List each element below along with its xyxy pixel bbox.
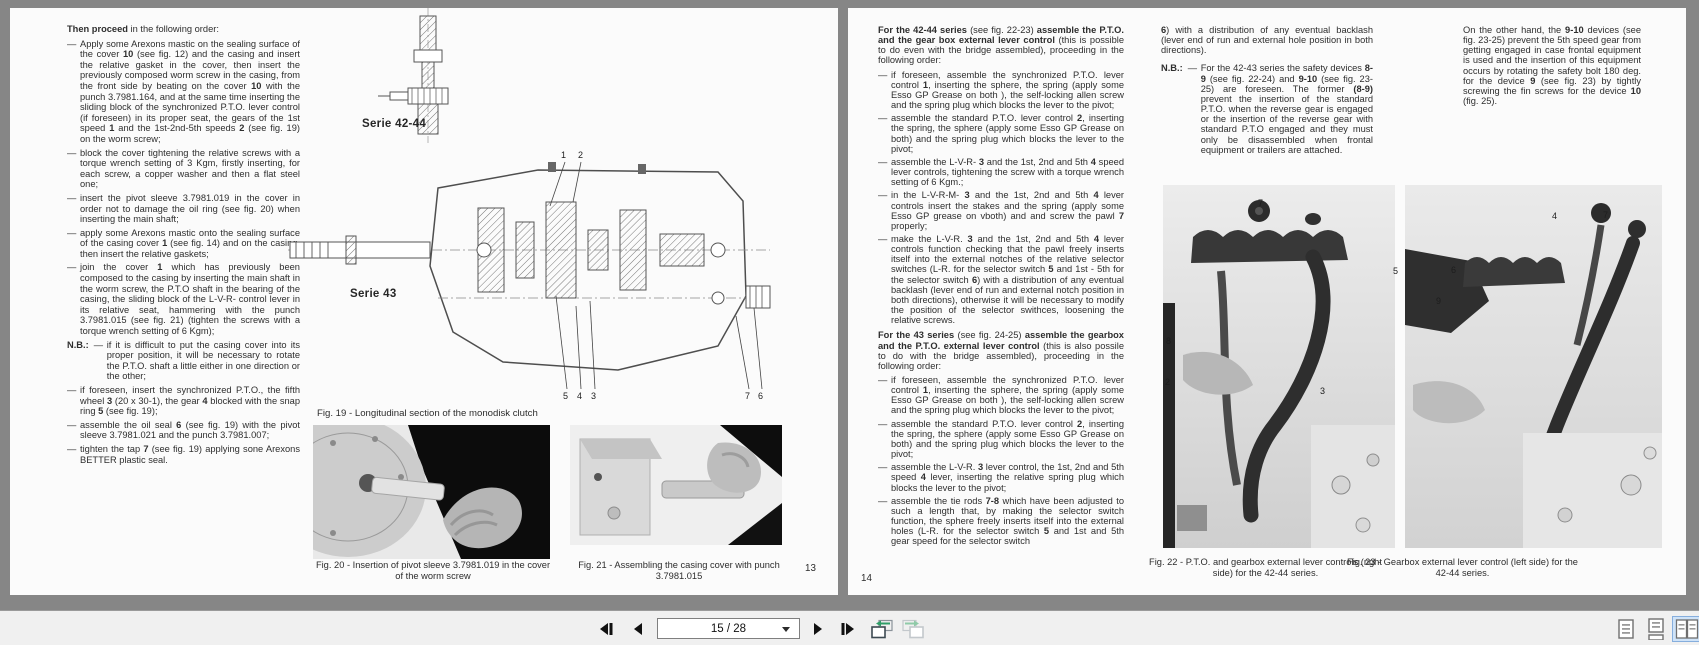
- list-item-text: For the 42-43 series the safety devices …: [1201, 63, 1373, 154]
- list-dash: —: [67, 228, 80, 260]
- list-item-text: if foreseen, insert the synchronized P.T…: [80, 385, 300, 417]
- list-item-text: in the L-V-R-M- 3 and the 1st, 2nd and 5…: [891, 190, 1124, 231]
- fig22-callout: 2: [1165, 377, 1170, 387]
- fig22-photo: [1163, 185, 1395, 548]
- list-dash: —: [94, 340, 107, 382]
- list-item: —assemble the L-V-R. 3 lever control, th…: [878, 462, 1124, 492]
- list-dash: —: [878, 375, 891, 416]
- fig23-callout: 6: [1451, 265, 1456, 275]
- list-item: —assemble the L-V-R- 3 and the 1st, 2nd …: [878, 157, 1124, 187]
- serie-42-44-label: Serie 42-44: [362, 118, 426, 130]
- list-dash: —: [878, 496, 891, 547]
- fig22-callout: 3: [1320, 386, 1325, 396]
- list-dash: —: [67, 262, 80, 336]
- next-view-button[interactable]: [899, 617, 927, 640]
- list-item-text: apply some Arexons mastic onto the seali…: [80, 228, 300, 260]
- list-item: —assemble the oil seal 6 (see fig. 19) w…: [67, 420, 300, 441]
- previous-page-icon: [630, 621, 646, 637]
- list-item-text: if foreseen, assemble the synchronized P…: [891, 375, 1124, 416]
- previous-view-icon: [870, 619, 894, 639]
- fig22-callout: 7: [1258, 198, 1263, 208]
- list-item: N.B.:—For the 42-43 series the safety de…: [1161, 63, 1373, 154]
- page-number-combobox[interactable]: 15 / 28: [657, 618, 800, 639]
- page-number-14: 14: [861, 573, 872, 584]
- nb-label: N.B.:: [1161, 63, 1183, 154]
- list-item: —if foreseen, assemble the synchronized …: [878, 375, 1124, 416]
- fig19-callout: 2: [578, 150, 583, 160]
- list-item: —if foreseen, assemble the synchronized …: [878, 70, 1124, 111]
- paragraph: Then proceed in the following order:: [67, 24, 300, 35]
- list-item: —apply some Arexons mastic onto the seal…: [67, 228, 300, 260]
- list-dash: —: [67, 385, 80, 417]
- list-dash: —: [67, 148, 80, 190]
- list-dash: —: [878, 70, 891, 111]
- fig21-caption: Fig. 21 - Assembling the casing cover wi…: [570, 560, 788, 582]
- fig23-callout: 9: [1436, 296, 1441, 306]
- continuous-view-icon: [1646, 618, 1666, 640]
- fig20-photo: [313, 425, 550, 559]
- fig20-caption: Fig. 20 - Insertion of pivot sleeve 3.79…: [313, 560, 553, 582]
- next-view-icon: [901, 619, 925, 639]
- fig19-callout: 4: [577, 391, 582, 401]
- right-text-column-3: On the other hand, the 9-10 devices (see…: [1463, 25, 1641, 106]
- fig19-caption: Fig. 19 - Longitudinal section of the mo…: [317, 408, 538, 419]
- nb-label: N.B.:: [67, 340, 89, 382]
- paragraph: For the 42-44 series (see fig. 22-23) as…: [878, 25, 1124, 66]
- single-page-view-button[interactable]: [1612, 616, 1639, 642]
- fig23-callout: 4: [1552, 211, 1557, 221]
- list-dash: —: [67, 193, 80, 225]
- nb-block: N.B.:—For the 42-43 series the safety de…: [1161, 63, 1373, 154]
- list-item: —make the L-V-R. 3 and the 1st, 2nd and …: [878, 234, 1124, 325]
- list-item: —tighten the tap 7 (see fig. 19) applyin…: [67, 444, 300, 465]
- list-item-text: Apply some Arexons mastic on the sealing…: [80, 39, 300, 145]
- first-page-button[interactable]: [594, 617, 618, 640]
- list-item-text: join the cover 1 which has previously be…: [80, 262, 300, 336]
- list-item: —block the cover tightening the relative…: [67, 148, 300, 190]
- next-page-button[interactable]: [806, 617, 830, 640]
- list-item: —assemble the standard P.T.O. lever cont…: [878, 419, 1124, 460]
- fig19-callout: 1: [561, 150, 566, 160]
- page-indicator-value: 15 / 28: [711, 623, 746, 635]
- paragraph: For the 43 series (see fig. 24-25) assem…: [878, 330, 1124, 371]
- manual-page-14: For the 42-44 series (see fig. 22-23) as…: [848, 8, 1686, 595]
- paragraph: 6) with a distribution of any eventual b…: [1161, 25, 1373, 55]
- fig23-photo: [1405, 185, 1662, 548]
- bullet-list: —Apply some Arexons mastic on the sealin…: [67, 39, 300, 466]
- serie-43-label: Serie 43: [350, 288, 397, 300]
- bullet-list: —if foreseen, assemble the synchronized …: [878, 70, 1124, 326]
- list-item-text: assemble the oil seal 6 (see fig. 19) wi…: [80, 420, 300, 441]
- previous-page-button[interactable]: [626, 617, 650, 640]
- continuous-view-button[interactable]: [1642, 616, 1669, 642]
- fig23-caption: Fig. 23 - Gearbox external lever control…: [1340, 557, 1585, 579]
- left-text-column: Then proceed in the following order: —Ap…: [67, 24, 300, 468]
- list-item-text: assemble the standard P.T.O. lever contr…: [891, 113, 1124, 154]
- list-dash: —: [878, 462, 891, 492]
- list-item: —if foreseen, insert the synchronized P.…: [67, 385, 300, 417]
- last-page-button[interactable]: [836, 617, 860, 640]
- list-dash: —: [67, 420, 80, 441]
- paragraph: On the other hand, the 9-10 devices (see…: [1463, 25, 1641, 106]
- viewer-toolbar: 15 / 28: [0, 610, 1699, 645]
- bullet-list: —if foreseen, assemble the synchronized …: [878, 375, 1124, 547]
- list-dash: —: [67, 444, 80, 465]
- next-page-icon: [810, 621, 826, 637]
- list-item-text: make the L-V-R. 3 and the 1st, 2nd and 5…: [891, 234, 1124, 325]
- list-dash: —: [1188, 63, 1201, 154]
- page-number-13: 13: [805, 563, 816, 574]
- right-text-column-1: For the 42-44 series (see fig. 22-23) as…: [878, 25, 1124, 550]
- facing-pages-view-button[interactable]: [1672, 616, 1699, 642]
- list-item-text: insert the pivot sleeve 3.7981.019 in th…: [80, 193, 300, 225]
- previous-view-button[interactable]: [868, 617, 896, 640]
- list-dash: —: [878, 234, 891, 325]
- list-item-text: if foreseen, assemble the synchronized P…: [891, 70, 1124, 111]
- list-item-text: assemble the tie rods 7-8 which have bee…: [891, 496, 1124, 547]
- fig22-callout: 8: [1166, 336, 1171, 346]
- right-text-column-2: 6) with a distribution of any eventual b…: [1161, 25, 1373, 158]
- list-item: —assemble the tie rods 7-8 which have be…: [878, 496, 1124, 547]
- fig19-callout: 3: [591, 391, 596, 401]
- list-item-text: block the cover tightening the relative …: [80, 148, 300, 190]
- list-item-text: assemble the L-V-R- 3 and the 1st, 2nd a…: [891, 157, 1124, 187]
- list-item: N.B.:—if it is difficult to put the casi…: [67, 340, 300, 382]
- list-dash: —: [878, 190, 891, 231]
- list-dash: —: [878, 419, 891, 460]
- list-item: —Apply some Arexons mastic on the sealin…: [67, 39, 300, 145]
- list-dash: —: [878, 113, 891, 154]
- chevron-down-icon: [782, 627, 790, 632]
- list-item-text: assemble the L-V-R. 3 lever control, the…: [891, 462, 1124, 492]
- list-item-text: tighten the tap 7 (see fig. 19) applying…: [80, 444, 300, 465]
- list-item: —join the cover 1 which has previously b…: [67, 262, 300, 336]
- list-item: —insert the pivot sleeve 3.7981.019 in t…: [67, 193, 300, 225]
- last-page-icon: [840, 621, 856, 637]
- fig21-photo: [570, 425, 782, 545]
- list-item: —in the L-V-R-M- 3 and the 1st, 2nd and …: [878, 190, 1124, 231]
- list-item-text: assemble the standard P.T.O. lever contr…: [891, 419, 1124, 460]
- fig22-callout: 5: [1393, 266, 1398, 276]
- first-page-icon: [598, 621, 614, 637]
- facing-pages-view-icon: [1675, 618, 1699, 640]
- fig19-callout: 5: [563, 391, 568, 401]
- list-item-text: if it is difficult to put the casing cov…: [107, 340, 300, 382]
- fig19-callout: 7: [745, 391, 750, 401]
- list-item: —assemble the standard P.T.O. lever cont…: [878, 113, 1124, 154]
- fig19-drawing: [288, 146, 772, 394]
- list-dash: —: [67, 39, 80, 145]
- list-dash: —: [878, 157, 891, 187]
- fig23-callout: 7: [1603, 210, 1608, 220]
- fig19-callout: 6: [758, 391, 763, 401]
- single-page-view-icon: [1616, 618, 1636, 640]
- manual-page-13: Then proceed in the following order: —Ap…: [10, 8, 838, 595]
